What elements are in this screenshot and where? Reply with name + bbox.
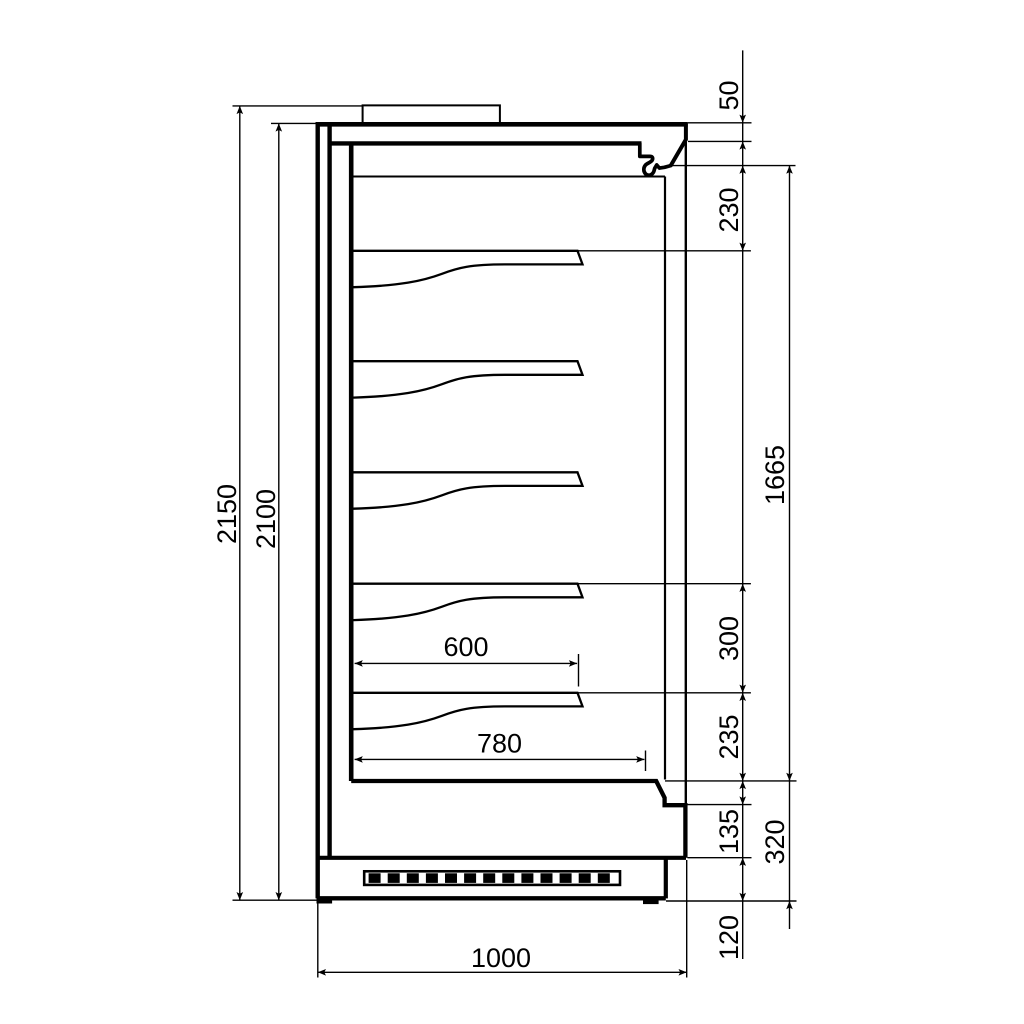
svg-text:600: 600 xyxy=(443,632,488,662)
svg-text:235: 235 xyxy=(714,714,744,759)
svg-text:2100: 2100 xyxy=(251,489,281,549)
svg-text:2150: 2150 xyxy=(212,484,242,544)
svg-text:320: 320 xyxy=(760,819,790,864)
svg-text:780: 780 xyxy=(477,729,522,759)
svg-text:230: 230 xyxy=(714,187,744,232)
svg-text:1665: 1665 xyxy=(760,445,790,505)
svg-text:135: 135 xyxy=(714,809,744,854)
svg-text:300: 300 xyxy=(714,616,744,661)
svg-text:50: 50 xyxy=(714,80,744,110)
svg-text:120: 120 xyxy=(714,915,744,960)
svg-text:1000: 1000 xyxy=(471,943,531,973)
